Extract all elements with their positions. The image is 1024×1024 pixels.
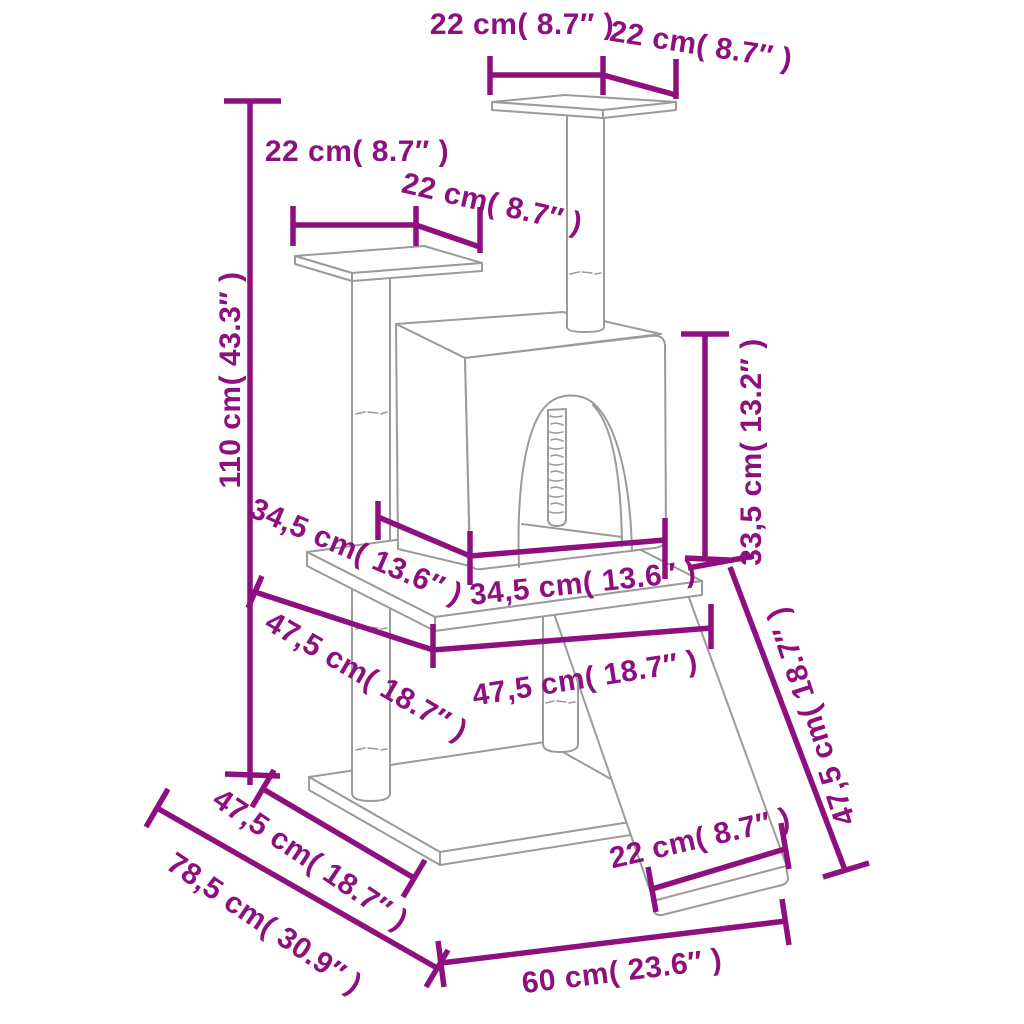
dim-label-top-platform-width: 22 cm( 8.7″ ) <box>430 10 614 40</box>
dim-line-condo-height <box>681 334 729 560</box>
top-platform <box>492 95 676 118</box>
dim-line-perch-platform <box>293 206 480 253</box>
dimension-diagram: 22 cm( 8.7″ ) 22 cm( 8.7″ ) 22 cm( 8.7″ … <box>0 0 1024 1024</box>
condo-house <box>396 312 666 569</box>
arch-post <box>548 409 566 526</box>
dim-label-total-height: 110 cm( 43.3″ ) <box>216 271 246 488</box>
dim-label-perch-width: 22 cm( 8.7″ ) <box>265 137 449 167</box>
ramp <box>550 595 788 915</box>
dim-line-top-platform <box>490 56 676 99</box>
perch-platform <box>295 246 482 281</box>
cat-tree-line-drawing <box>0 0 1024 1024</box>
dim-label-condo-height: 33,5 cm( 13.2″ ) <box>737 338 767 566</box>
